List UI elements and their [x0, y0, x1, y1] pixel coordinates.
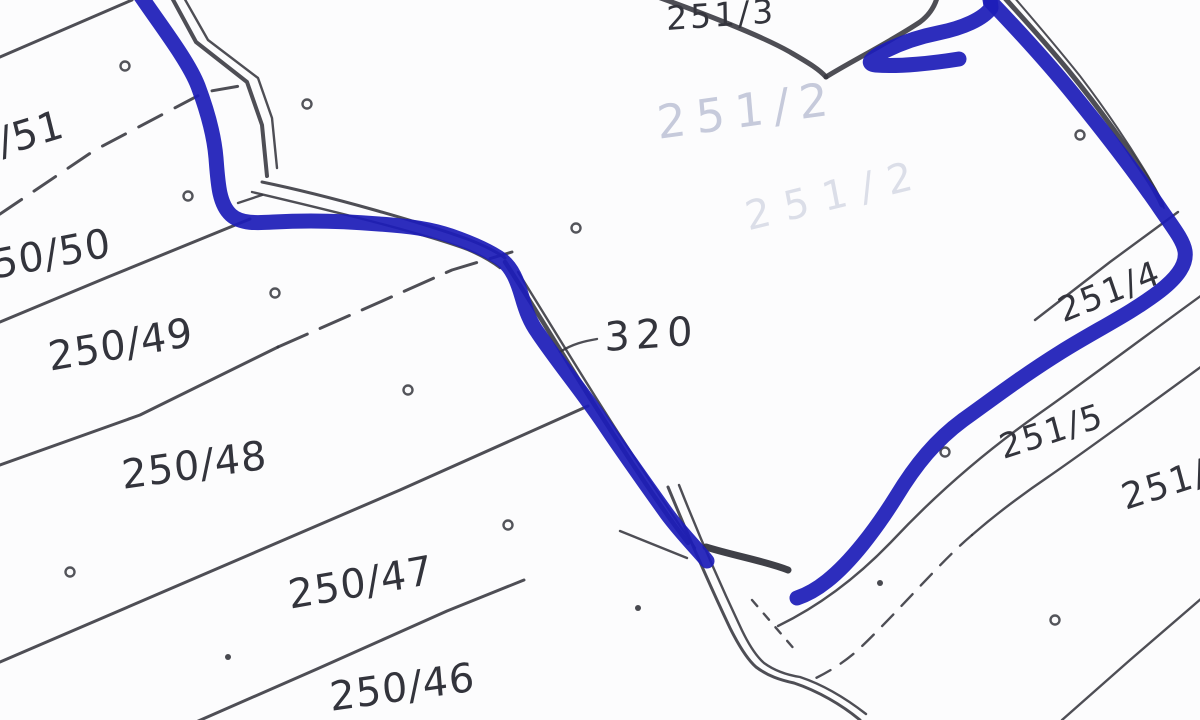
survey-point-circle: [404, 386, 413, 395]
survey-point-dot: [225, 654, 231, 660]
map-linework: [0, 0, 1200, 720]
v-boundary-left: [655, 0, 826, 77]
right-strip-line-c2: [816, 535, 972, 678]
survey-point-circle: [303, 100, 312, 109]
survey-point-circle: [572, 224, 581, 233]
survey-point-circle: [504, 521, 513, 530]
survey-point-circle: [66, 568, 75, 577]
blue-marker-left-branch: [138, 0, 707, 561]
strip-line-5: [0, 406, 588, 662]
blue-marker-right-branch: [797, 2, 1185, 598]
survey-point-circle: [1051, 616, 1060, 625]
track-vert-dashes: [752, 600, 795, 650]
survey-point-circle: [941, 448, 950, 457]
bend-scratch: [238, 195, 262, 203]
right-strip-line-d: [1062, 598, 1200, 720]
strip-line-1: [0, 0, 132, 57]
junction-blob: [706, 547, 788, 570]
survey-point-circle: [1076, 131, 1085, 140]
cadastral-map-canvas: 251/3/5150/50250/49250/48250/47250/46320…: [0, 0, 1200, 720]
survey-point-dot: [635, 605, 641, 611]
track-vert-inner: [679, 485, 866, 714]
strip-line-4a: [0, 347, 278, 465]
tick-320: [560, 339, 597, 352]
track-vert-outer: [668, 487, 860, 720]
strip-line-3: [0, 219, 250, 322]
survey-point-circle: [271, 289, 280, 298]
survey-point-circle: [121, 62, 130, 71]
survey-point-circle: [184, 192, 193, 201]
right-strip-line-a: [1035, 212, 1178, 320]
survey-point-dot: [877, 580, 883, 586]
strip-line-4b: [278, 252, 512, 347]
strip-line-6: [196, 580, 524, 720]
